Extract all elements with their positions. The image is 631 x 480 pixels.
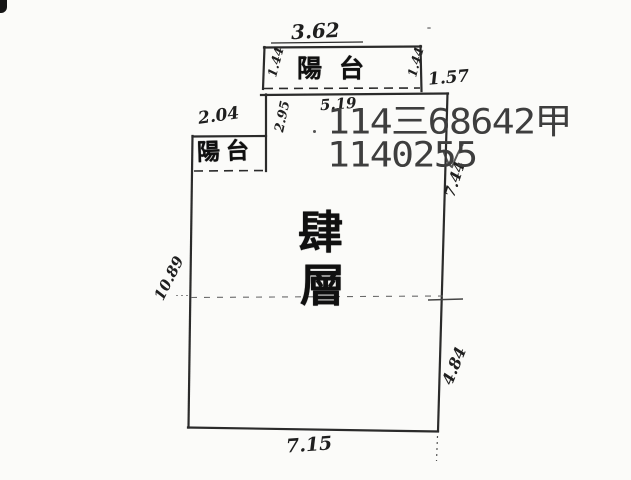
bottom-right-dotted-tail [437,436,438,461]
balcony-label-top: 陽台 [297,56,381,81]
dimension-top-balcony-width: 3.62 [291,20,341,43]
dimension-top-right-offset: 1.57 [427,68,470,89]
unit-left-wall [189,136,193,428]
top-balcony-dashed-edge [264,88,420,89]
ink-speck [313,130,316,133]
balcony-label-left: 陽台 [197,139,256,164]
floor-level-char-1: 肆 [298,210,343,255]
top-balcony-top-wall [264,47,421,48]
stamp-number-line2: 1140255 [327,137,477,172]
top-balcony-left-wall [263,47,265,89]
left-balcony-top-wall [193,136,267,137]
right-wall-tick [428,299,463,300]
unit-bottom-wall [188,428,438,432]
dimension-bottom-wall: 7.15 [285,434,332,456]
ink-speck-faint [427,27,431,29]
left-balcony-dashed-edge [194,171,266,172]
floorplan-scan: 3.62 1.44 1.44 1.57 5.19 2.04 2.95 7.44 … [0,0,631,480]
floor-level-char-2: 層 [300,263,345,308]
